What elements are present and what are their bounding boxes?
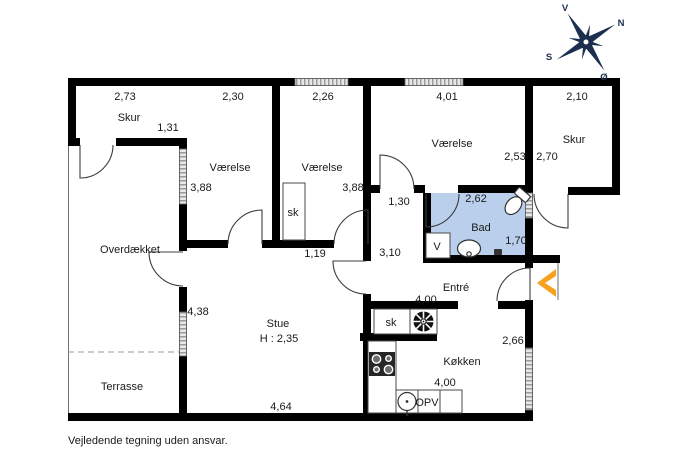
counter-box [440, 390, 462, 413]
entrance-arrow-icon [537, 269, 556, 297]
door-arc [497, 268, 530, 301]
room-label-kitchen: Køkken [443, 356, 480, 368]
dim-skur-left-depth: 1,31 [157, 122, 178, 134]
compass-north-label: N [618, 18, 625, 29]
room-label-living: Stue [267, 318, 290, 330]
dim-hallway-length: 3,10 [379, 247, 400, 259]
room-label-terrace: Terrasse [101, 381, 143, 393]
room-label-bedroom-3: Værelse [432, 138, 473, 150]
room-label-covered: Overdækket [100, 244, 160, 256]
room-label-bedroom-1: Værelse [210, 162, 251, 174]
dishwasher-label: OPV [415, 397, 439, 409]
dim-kitchen-width: 4,00 [434, 377, 455, 389]
dim-hallway-width: 1,30 [388, 196, 409, 208]
dim-living-side: 4,38 [187, 306, 208, 318]
door-arc [80, 145, 113, 178]
dim-skur-left-width: 2,73 [114, 91, 135, 103]
counter [368, 341, 396, 413]
dim-bedroom-2-depth: 3,88 [342, 182, 363, 194]
floorplan-canvas: V N S Ø 2,73 Skur 1,31 2,30 Værelse 3,88… [0, 0, 687, 457]
room-label-entry: Entré [443, 282, 469, 294]
closet-entry-label: sk [386, 317, 398, 329]
door-arc [334, 210, 368, 244]
dim-bathroom-depth: 1,70 [505, 235, 526, 247]
window [295, 79, 348, 86]
dim-bedroom-2-width: 2,26 [312, 91, 333, 103]
dim-living-width: 4,64 [270, 401, 291, 413]
room-label-skur-left: Skur [118, 112, 141, 124]
room-label-bedroom-2: Værelse [302, 162, 343, 174]
dim-bathroom-width: 2,62 [465, 193, 486, 205]
window [180, 149, 187, 204]
window [405, 79, 463, 86]
dim-bedroom-3-width: 4,01 [436, 91, 457, 103]
dim-bedroom-1-width: 2,30 [222, 91, 243, 103]
dim-entry-width: 4,00 [415, 294, 436, 306]
room-label-skur-right: Skur [563, 134, 586, 146]
compass-west-label: V [562, 3, 569, 14]
dim-bedroom-3-depth: 2,53 [504, 151, 525, 163]
compass-east-label: Ø [600, 72, 607, 83]
door-arc [149, 252, 183, 286]
compass-rose: V N S Ø [546, 3, 625, 83]
vent-box-label: V [433, 241, 441, 253]
stove-icon [369, 352, 395, 376]
dim-skur-right-depth: 2,70 [536, 151, 557, 163]
door-arc [380, 155, 414, 189]
window [526, 348, 533, 410]
floor-drain-icon [494, 249, 502, 255]
floorplan-drawing: V N S Ø 2,73 Skur 1,31 2,30 Værelse 3,88… [0, 0, 687, 457]
dim-skur-right-width: 2,10 [566, 91, 587, 103]
door-arc [228, 210, 262, 244]
door-arc [333, 261, 366, 294]
fan-icon [414, 312, 434, 332]
dim-kitchen-depth: 2,66 [502, 335, 523, 347]
dim-hallway-closet-wall: 1,19 [304, 248, 325, 260]
disclaimer-note: Vejledende tegning uden ansvar. [68, 435, 228, 447]
window [180, 312, 187, 356]
living-ceiling-height: H : 2,35 [260, 333, 299, 345]
room-label-bathroom: Bad [471, 222, 491, 234]
compass-south-label: S [546, 52, 552, 63]
bath-sink-icon [458, 240, 481, 257]
dim-bedroom-1-depth: 3,88 [190, 182, 211, 194]
door-arc [534, 194, 568, 228]
closet-bedroom-label: sk [288, 207, 300, 219]
